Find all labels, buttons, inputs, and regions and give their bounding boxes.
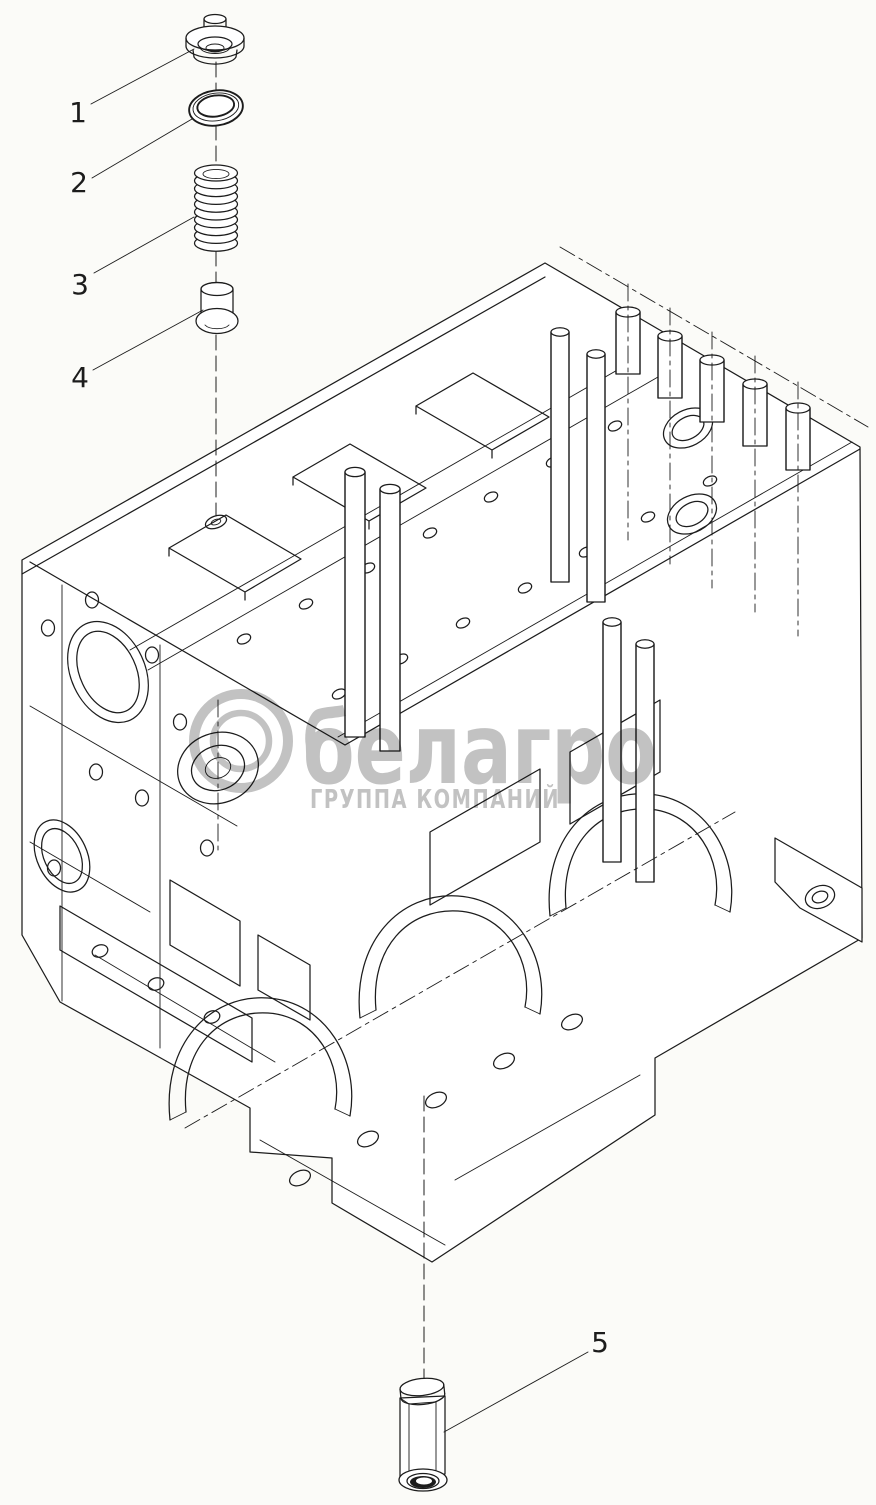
- leader-line-1: [91, 49, 194, 104]
- callout-4-label: 4: [71, 361, 89, 394]
- drawing-line: [603, 618, 621, 626]
- part-2-oring: [187, 87, 245, 129]
- drawing-line: [636, 640, 654, 648]
- drawing-line: [287, 1167, 313, 1189]
- part-3-spring: [195, 165, 238, 251]
- tube: [587, 350, 605, 602]
- callout-1-label: 1: [69, 96, 87, 129]
- drawing-line: [399, 1376, 445, 1398]
- callout-5-label: 5: [591, 1326, 609, 1359]
- drawing-line: [196, 309, 238, 334]
- tube: [551, 328, 569, 582]
- leader-line-2: [92, 119, 192, 178]
- part-5-sleeve: [399, 1376, 447, 1491]
- drawing-line: [380, 484, 400, 493]
- leader-line-3: [94, 217, 194, 273]
- part-1-plug: [186, 15, 244, 65]
- exploded-parts-diagram: 1 2 3 4 5 белагро ГРУППА КОМПАНИЙ: [0, 0, 876, 1505]
- drawing-line: [400, 1396, 445, 1477]
- drawing-line: [551, 328, 569, 336]
- drawing-line: [551, 332, 569, 582]
- drawing-line: [587, 354, 605, 602]
- drawing-line: [186, 26, 244, 50]
- callout-2-label: 2: [70, 166, 88, 199]
- drawing-line: [587, 350, 605, 358]
- drawing-line: [416, 1478, 432, 1485]
- watermark-subtext: ГРУППА КОМПАНИЙ: [310, 783, 560, 815]
- callout-3-label: 3: [71, 268, 89, 301]
- drawing-line: [204, 15, 226, 24]
- leader-line-4: [93, 310, 203, 370]
- part-4-plunger: [196, 283, 238, 334]
- leader-line-5: [444, 1352, 588, 1432]
- drawing-line: [345, 467, 365, 476]
- parts-diagram-page: 1 2 3 4 5 белагро ГРУППА КОМПАНИЙ: [0, 0, 876, 1505]
